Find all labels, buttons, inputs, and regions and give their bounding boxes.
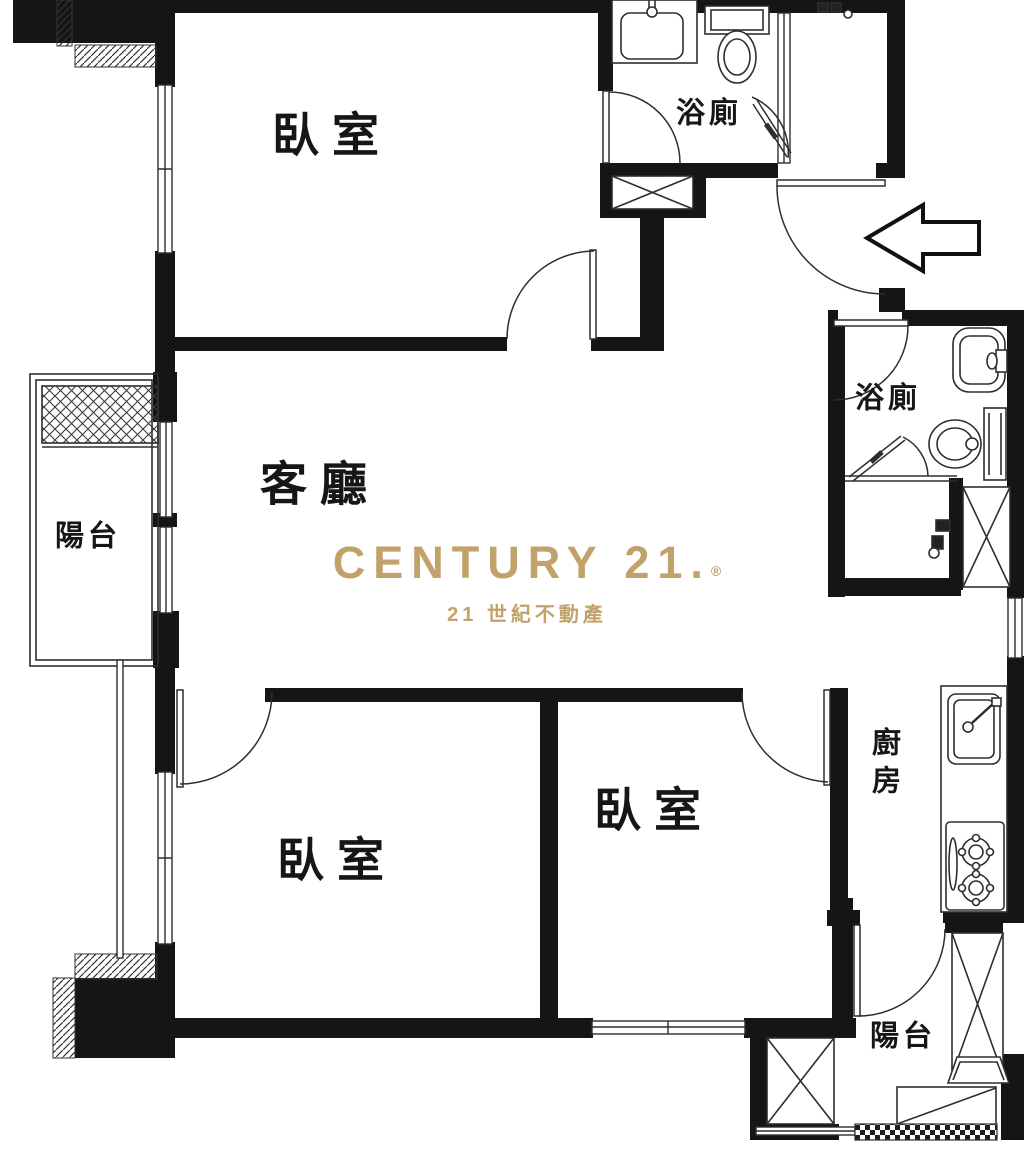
- room-label-living-room: 客廳: [260, 463, 380, 510]
- floor-plan: 臥室 浴廁 客廳 陽台 浴廁 廚房 臥室 臥室 陽台 CENTURY 21.® …: [0, 0, 1024, 1152]
- brand-logo: CENTURY 21.® 21 世紀不動產: [333, 537, 721, 627]
- room-label-bedroom-middle: 臥室: [594, 789, 714, 836]
- room-label-balcony-bottom: 陽台: [870, 1023, 936, 1052]
- brand-logo-wordmark: CENTURY 21.®: [333, 537, 721, 589]
- entrance-arrow-icon: [867, 205, 979, 271]
- registered-mark-icon: ®: [711, 563, 721, 579]
- room-label-bedroom-left: 臥室: [277, 839, 397, 886]
- room-label-bathroom-top: 浴廁: [676, 100, 742, 129]
- room-label-bathroom-right: 浴廁: [855, 385, 921, 414]
- room-label-balcony-left: 陽台: [55, 523, 121, 552]
- kitchen-fixtures: [941, 686, 1007, 912]
- room-label-kitchen: 廚房: [869, 727, 898, 803]
- brand-logo-subtitle: 21 世紀不動產: [333, 598, 721, 627]
- room-label-bedroom-top: 臥室: [272, 114, 392, 161]
- balcony-bottom-fixtures: [855, 1057, 1009, 1140]
